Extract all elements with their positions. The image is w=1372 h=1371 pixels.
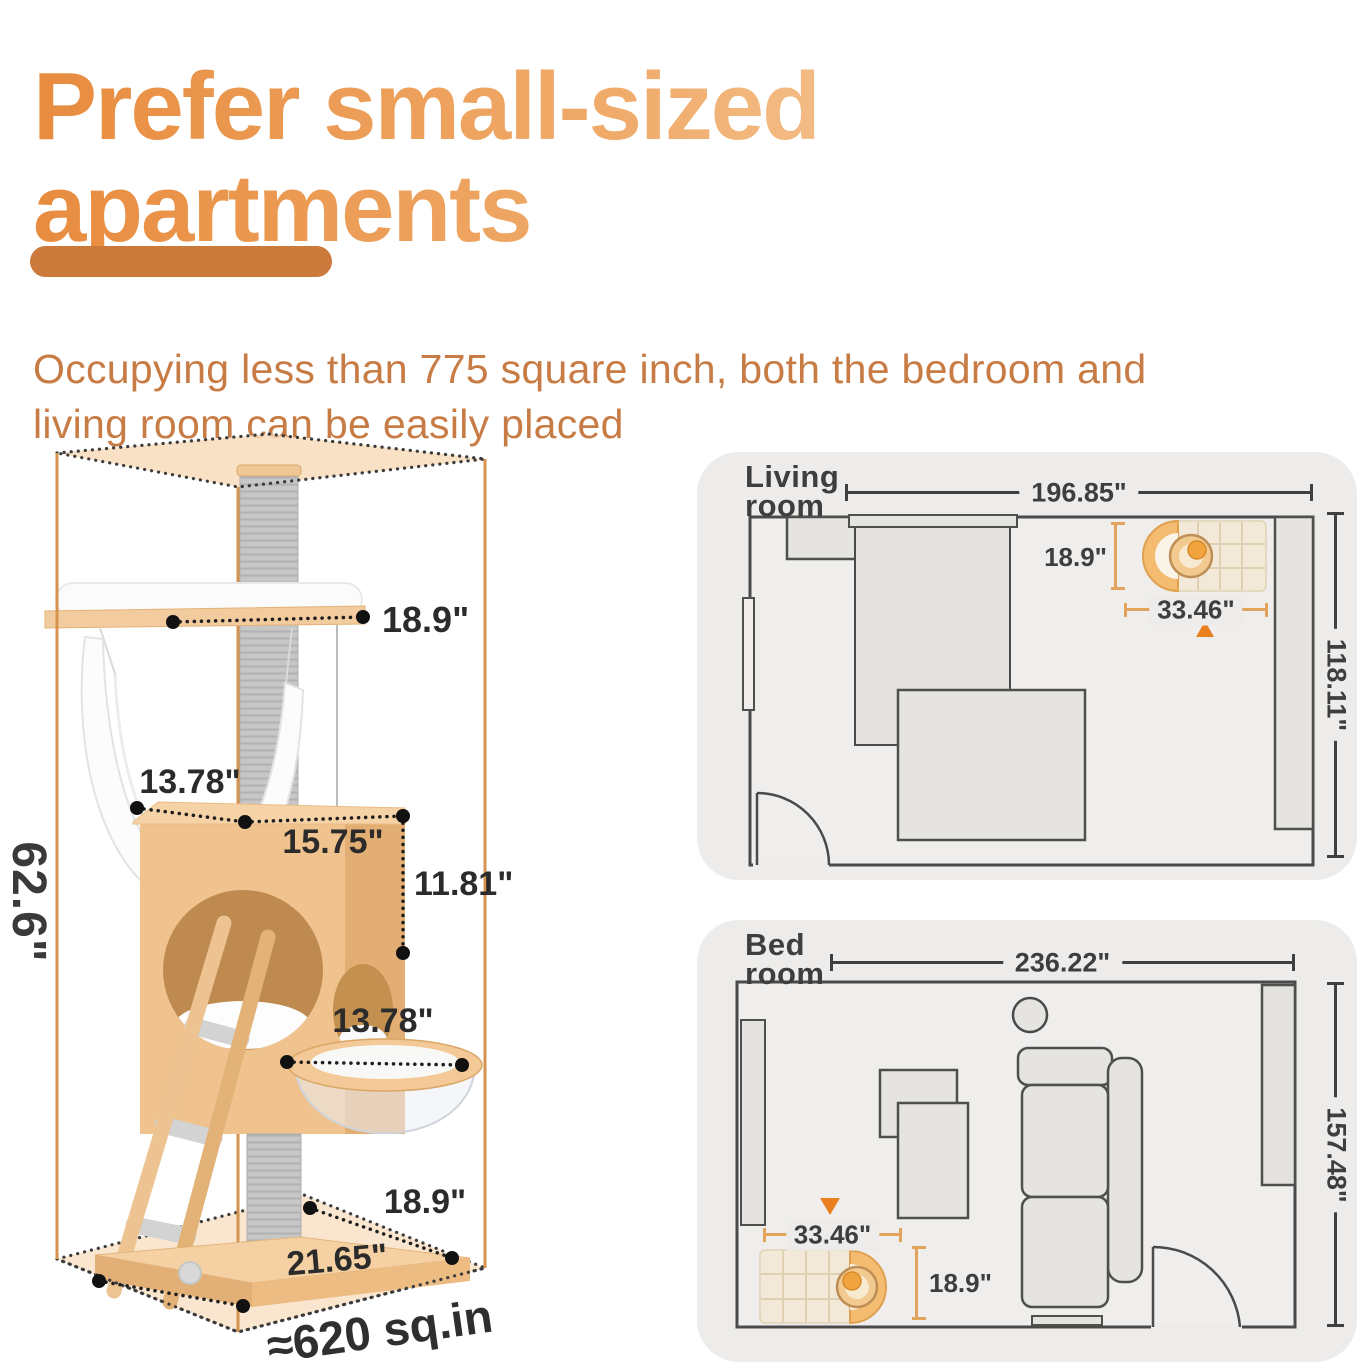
bedroom-width-dimension: 236.22" <box>830 961 1295 964</box>
dim-condo-height: 11.81" <box>414 865 513 903</box>
bedroom-depth-label: 157.48" <box>1321 1097 1352 1212</box>
living-room-depth-label: 118.11" <box>1321 629 1352 741</box>
living-tree-width-label: 33.46" <box>1149 595 1242 626</box>
bedroom-tree-depth-label: 18.9" <box>929 1268 1019 1299</box>
dim-top-perch: 18.9" <box>382 599 469 640</box>
living-room-panel: Living room 196.85" 118.11" 18.9" 33.46" <box>697 452 1357 880</box>
dim-condo-depth: 13.78" <box>139 763 240 801</box>
cat-tree-top-view <box>760 1250 886 1323</box>
living-tree-width-dimension: 33.46" <box>1124 608 1268 611</box>
cat-tree-illustration: 18.9" 13.78" 15.75" 11.81" 13.78" 18.9" … <box>0 425 540 1371</box>
page-title: Prefer small-sized apartments <box>33 56 1123 260</box>
living-room-depth-dimension: 118.11" <box>1334 512 1337 858</box>
bedroom-tree-width-dimension: 33.46" <box>763 1233 902 1236</box>
living-room-width-label: 196.85" <box>1019 478 1138 509</box>
top-perch <box>45 583 365 628</box>
dim-condo-width: 15.75" <box>282 823 383 861</box>
dim-capsule: 13.78" <box>332 1002 433 1040</box>
bedroom-width-label: 236.22" <box>1003 948 1122 979</box>
living-tree-depth-label: 18.9" <box>1037 542 1107 573</box>
divider-pill <box>30 246 332 277</box>
cat-tree-top-view <box>1143 521 1266 591</box>
living-room-width-dimension: 196.85" <box>845 491 1313 494</box>
page: Prefer small-sized apartments Occupying … <box>0 0 1372 1371</box>
living-tree-depth-dimension <box>1114 522 1117 590</box>
bedroom-tree-width-label: 33.46" <box>786 1220 879 1251</box>
bedroom-depth-dimension: 157.48" <box>1334 982 1337 1327</box>
bedroom-panel: Bed room 236.22" 157.48" 33.46" 18.9" <box>697 920 1357 1362</box>
dim-base-depth: 18.9" <box>384 1183 466 1221</box>
bedroom-tree-depth-dimension <box>915 1246 918 1320</box>
